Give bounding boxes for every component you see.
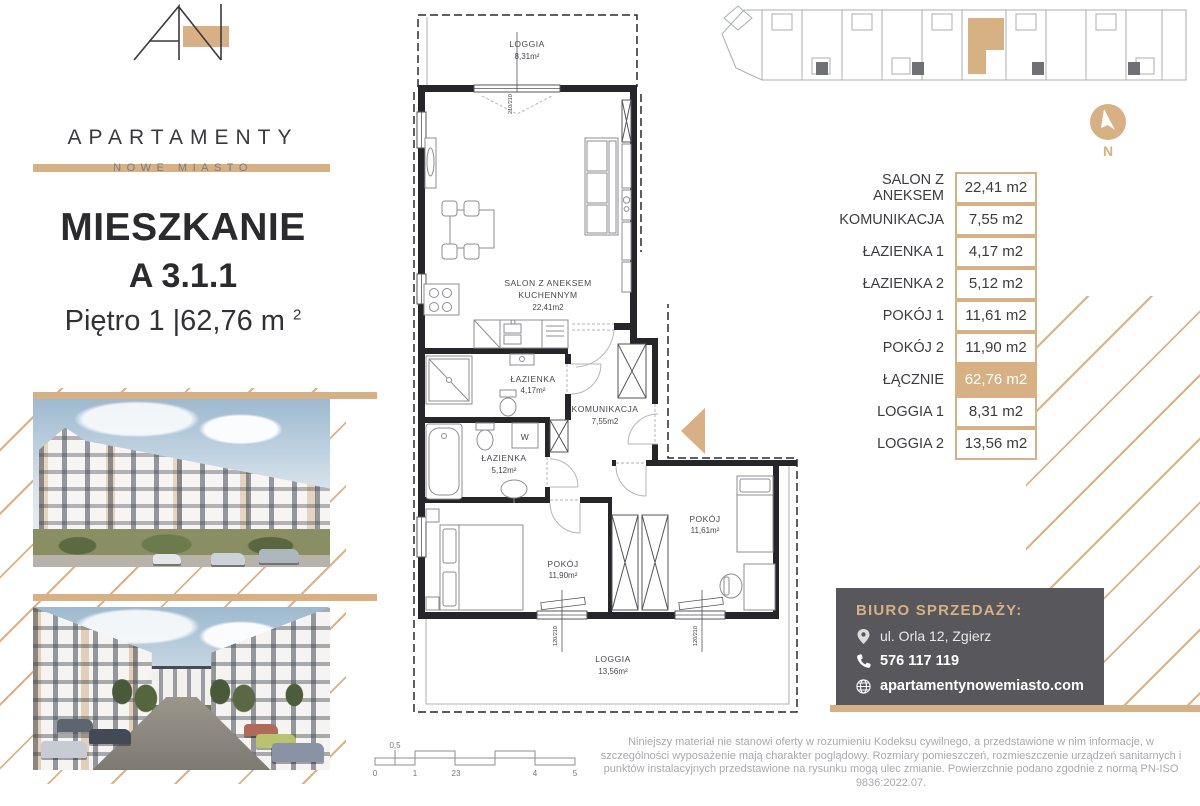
photo2-car-2 bbox=[89, 729, 131, 744]
photo2-car-1 bbox=[57, 719, 93, 732]
building-photo-2 bbox=[33, 607, 330, 770]
room-area-loggia1: 8,31m² bbox=[515, 52, 540, 61]
total-area: 62,76 m bbox=[180, 305, 285, 337]
building-photo-1 bbox=[33, 399, 330, 567]
scale-label-4: 5 bbox=[573, 769, 578, 778]
scale-label-3: 4 bbox=[533, 769, 538, 778]
room-label-loggia1: LOGGIA bbox=[509, 39, 545, 49]
row-value: 11,61 m2 bbox=[955, 300, 1037, 332]
floor-area-line: Piętro 1 |62,76 m 2 bbox=[23, 305, 343, 338]
brand-block: APARTAMENTY NOWE MIASTO bbox=[23, 0, 343, 174]
brochure-page: APARTAMENTY NOWE MIASTO MIESZKANIE A 3.1… bbox=[0, 0, 1200, 806]
brand-subtitle: NOWE MIASTO bbox=[23, 162, 343, 174]
north-arrow-icon bbox=[1090, 104, 1126, 140]
row-label: POKÓJ 2 bbox=[810, 340, 955, 356]
website-text: apartamentynowemiasto.com bbox=[880, 678, 1084, 694]
row-label: ŁĄCZNIE bbox=[810, 372, 955, 388]
room-label-lazienka1: ŁAZIENKA bbox=[510, 374, 555, 384]
north-label: N bbox=[1103, 143, 1113, 159]
room-label-salon-2: KUCHENNYM bbox=[518, 290, 577, 300]
floor-label: Piętro 1 bbox=[65, 305, 165, 337]
row-label: ŁAZIENKA 1 bbox=[810, 244, 955, 260]
area-superscript: 2 bbox=[293, 306, 301, 323]
globe-icon bbox=[856, 679, 871, 694]
unit-number: A 3.1.1 bbox=[23, 257, 343, 296]
scale-label-1: 1 bbox=[413, 769, 418, 778]
table-row: ŁAZIENKA 1 4,17 m2 bbox=[810, 238, 1037, 266]
room-label-salon-1: SALON Z ANEKSEM bbox=[504, 278, 591, 288]
room-label-loggia2: LOGGIA bbox=[595, 654, 631, 664]
room-label-pokoj1: POKÓJ bbox=[689, 514, 720, 524]
address-text: ul. Orla 12, Zgierz bbox=[880, 628, 991, 644]
window-dim-bottom-1: 120/210 bbox=[553, 626, 559, 646]
photo1-accent-bar bbox=[33, 392, 377, 399]
row-value: 5,12 m2 bbox=[955, 268, 1037, 300]
room-label-lazienka2: ŁAZIENKA bbox=[481, 453, 526, 463]
room-area-lazienka1: 4,17m² bbox=[521, 386, 546, 395]
row-label: KOMUNIKACJA bbox=[810, 212, 955, 228]
page-title: MIESZKANIE bbox=[23, 206, 343, 250]
address-row: ul. Orla 12, Zgierz bbox=[856, 628, 1104, 644]
room-label-pokoj2: POKÓJ bbox=[547, 559, 578, 569]
floor-plan: LOGGIA 8,31m² SALON Z ANEKSEM KUCHENNYM … bbox=[400, 12, 812, 742]
photo1-car-2 bbox=[259, 549, 299, 563]
room-area-lazienka2: 5,12m² bbox=[492, 466, 517, 475]
phone-text: 576 117 119 bbox=[880, 653, 959, 669]
contact-accent-bar bbox=[830, 705, 1200, 712]
photo2-car-6 bbox=[272, 743, 324, 762]
table-row: POKÓJ 1 11,61 m2 bbox=[810, 302, 1037, 330]
window-dim-top: 210/210 bbox=[508, 94, 514, 114]
room-area-loggia2: 13,56m² bbox=[598, 667, 628, 676]
row-value: 11,90 m2 bbox=[955, 332, 1037, 364]
photo2-accent-bar bbox=[33, 594, 377, 601]
photo2-car-3 bbox=[41, 741, 87, 758]
row-value: 22,41 m2 bbox=[955, 172, 1037, 204]
sales-office-heading: BIURO SPRZEDAŻY: bbox=[856, 602, 1104, 619]
row-label: ŁAZIENKA 2 bbox=[810, 276, 955, 292]
phone-row: 576 117 119 bbox=[856, 653, 1104, 669]
table-row: KOMUNIKACJA 7,55 m2 bbox=[810, 206, 1037, 234]
row-label: SALON Z ANEKSEM bbox=[810, 172, 955, 204]
row-value: 7,55 m2 bbox=[955, 204, 1037, 236]
highlighted-unit bbox=[968, 18, 1004, 74]
area-table: SALON Z ANEKSEM 22,41 m2 KOMUNIKACJA 7,5… bbox=[810, 174, 1037, 462]
scale-label-0: 0 bbox=[373, 769, 378, 778]
table-row: POKÓJ 2 11,90 m2 bbox=[810, 334, 1037, 362]
row-label: LOGGIA 2 bbox=[810, 436, 955, 452]
scale-bar: 0,5 0 1 23 4 5 bbox=[363, 741, 591, 783]
sales-office-card: BIURO SPRZEDAŻY: ul. Orla 12, Zgierz 576… bbox=[836, 588, 1104, 706]
entrance-arrow-icon bbox=[681, 408, 705, 454]
table-row: SALON Z ANEKSEM 22,41 m2 bbox=[810, 174, 1037, 202]
window-dim-bottom-2: 120/210 bbox=[693, 626, 699, 646]
row-label: LOGGIA 1 bbox=[810, 404, 955, 420]
table-row-total: ŁĄCZNIE 62,76 m2 bbox=[810, 366, 1037, 394]
room-label-komunikacja: KOMUNIKACJA bbox=[572, 404, 639, 414]
room-area-pokoj1: 11,61m² bbox=[691, 526, 720, 535]
separator: | bbox=[165, 305, 181, 337]
closet-label: W bbox=[521, 432, 530, 442]
scale-label-2: 23 bbox=[452, 769, 461, 778]
legal-disclaimer: Niniejszy materiał nie stanowi oferty w … bbox=[595, 736, 1187, 790]
phone-icon bbox=[856, 654, 871, 669]
table-row: ŁAZIENKA 2 5,12 m2 bbox=[810, 270, 1037, 298]
brand-logo-monogram-icon bbox=[131, 4, 236, 62]
table-row: LOGGIA 1 8,31 m2 bbox=[810, 398, 1037, 426]
photo1-car-1 bbox=[211, 553, 245, 565]
row-value: 13,56 m2 bbox=[955, 428, 1037, 460]
row-value: 4,17 m2 bbox=[955, 236, 1037, 268]
scale-half-label: 0,5 bbox=[389, 741, 401, 750]
row-label: POKÓJ 1 bbox=[810, 308, 955, 324]
location-pin-icon bbox=[856, 629, 871, 644]
room-area-salon: 22,41m2 bbox=[532, 303, 564, 312]
row-value: 62,76 m2 bbox=[955, 364, 1037, 396]
photo1-car-3 bbox=[153, 554, 181, 564]
room-area-komunikacja: 7,55m2 bbox=[592, 417, 619, 426]
room-area-pokoj2: 11,90m² bbox=[549, 571, 578, 580]
brand-name: APARTAMENTY bbox=[23, 126, 343, 150]
row-value: 8,31 m2 bbox=[955, 396, 1037, 428]
website-row: apartamentynowemiasto.com bbox=[856, 678, 1104, 694]
table-row: LOGGIA 2 13,56 m2 bbox=[810, 430, 1037, 458]
apartment-title-block: MIESZKANIE A 3.1.1 Piętro 1 |62,76 m 2 bbox=[23, 206, 343, 338]
